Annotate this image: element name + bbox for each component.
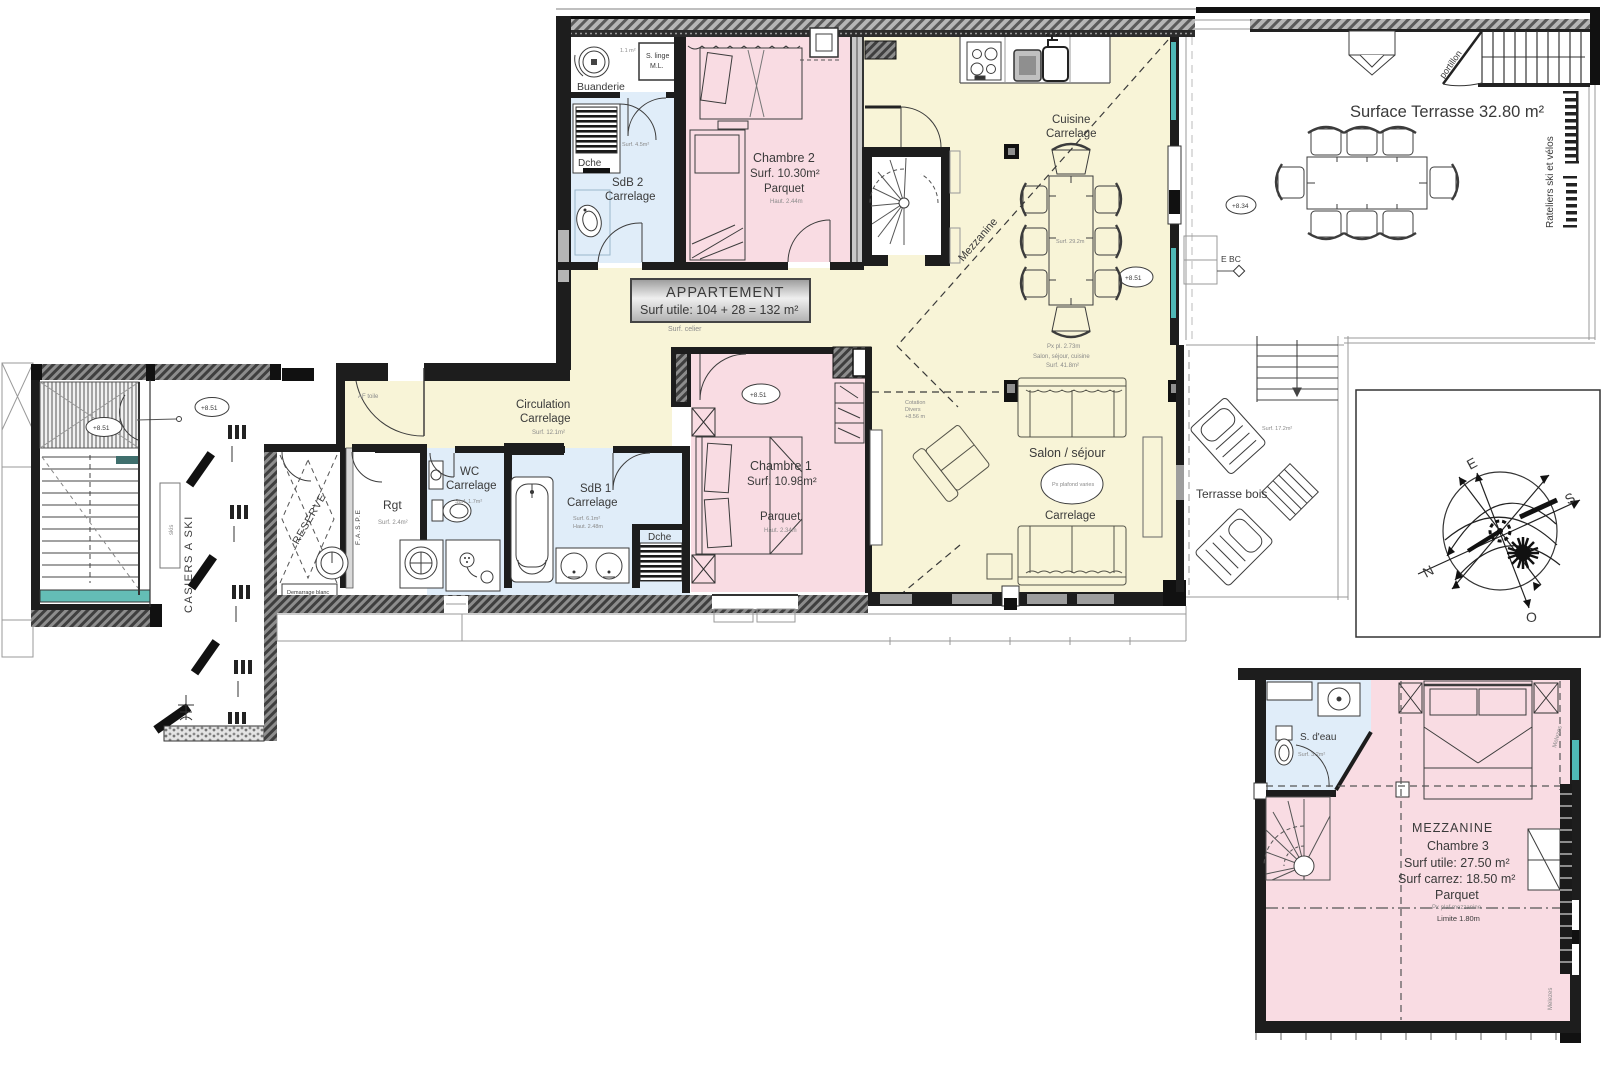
svg-text:Melezes: Melezes: [1548, 988, 1554, 1010]
svg-text:Chambre 2: Chambre 2: [753, 151, 815, 165]
svg-text:+8.34: +8.34: [1232, 203, 1249, 210]
svg-text:F.A.S.P.E: F.A.S.P.E: [355, 509, 362, 545]
svg-text:Carrelage: Carrelage: [446, 480, 497, 492]
svg-text:Haut. 2.44m: Haut. 2.44m: [770, 199, 803, 205]
svg-text:Chambre 3: Chambre 3: [1427, 839, 1489, 853]
svg-text:Surface Terrasse 32.80 m²: Surface Terrasse 32.80 m²: [1350, 103, 1545, 121]
svg-text:SdB 1: SdB 1: [580, 483, 611, 495]
svg-text:Surf. 10.30m²: Surf. 10.30m²: [750, 168, 820, 180]
svg-text:Surf. 2.4m²: Surf. 2.4m²: [378, 520, 408, 526]
svg-text:+8.51: +8.51: [750, 392, 767, 399]
svg-text:Carrelage: Carrelage: [567, 497, 618, 509]
svg-text:Carrelage: Carrelage: [1045, 510, 1096, 522]
svg-text:Surf. 1.7m²: Surf. 1.7m²: [455, 499, 482, 505]
svg-text:+8.51: +8.51: [1125, 275, 1142, 282]
svg-text:MEZZANINE: MEZZANINE: [1412, 821, 1493, 835]
svg-text:Parquet: Parquet: [1435, 888, 1479, 902]
svg-text:SdB 2: SdB 2: [612, 177, 643, 189]
svg-text:Surf. 12.1m²: Surf. 12.1m²: [532, 430, 565, 436]
svg-text:Surf. celier: Surf. celier: [668, 326, 702, 333]
svg-text:S. d'eau: S. d'eau: [1300, 732, 1336, 743]
svg-text:AF toile: AF toile: [358, 394, 379, 400]
svg-text:Limite 1.80m: Limite 1.80m: [1437, 914, 1480, 923]
svg-text:Surf utile: 27.50 m²: Surf utile: 27.50 m²: [1404, 856, 1510, 870]
svg-text:skis: skis: [169, 525, 175, 535]
svg-text:Dche: Dche: [578, 158, 602, 169]
svg-text:Rgt: Rgt: [383, 498, 402, 512]
svg-text:Circulation: Circulation: [516, 399, 570, 411]
svg-text:Carrelage: Carrelage: [605, 191, 656, 203]
svg-text:1.1 m²: 1.1 m²: [620, 48, 636, 54]
svg-text:Surf. 17.2m²: Surf. 17.2m²: [1262, 426, 1292, 432]
svg-text:Carrelage: Carrelage: [520, 413, 571, 425]
svg-text:Px plafond varies: Px plafond varies: [1052, 482, 1094, 488]
svg-text:Surf. 29.2m: Surf. 29.2m: [1056, 239, 1085, 245]
svg-text:Rateliers ski et vélos: Rateliers ski et vélos: [1545, 136, 1556, 228]
svg-text:APPARTEMENT: APPARTEMENT: [666, 285, 784, 301]
svg-text:Px plaf mezzanine: Px plaf mezzanine: [1432, 905, 1482, 911]
svg-text:Parquet: Parquet: [764, 183, 805, 195]
svg-text:Surf. 10.98m²: Surf. 10.98m²: [747, 476, 817, 488]
svg-text:Surf. 4.5m²: Surf. 4.5m²: [622, 142, 649, 148]
svg-text:O: O: [1526, 609, 1537, 625]
svg-text:Terrasse bois: Terrasse bois: [1196, 487, 1267, 501]
svg-text:Surf. 41.8m²: Surf. 41.8m²: [1046, 363, 1079, 369]
svg-text:WC: WC: [460, 466, 479, 478]
svg-text:+8.56 m: +8.56 m: [905, 414, 925, 420]
svg-text:Buanderie: Buanderie: [577, 81, 625, 93]
svg-text:Surf. 3.2m²: Surf. 3.2m²: [1298, 752, 1325, 758]
svg-text:Surf carrez: 18.50 m²: Surf carrez: 18.50 m²: [1398, 872, 1515, 886]
svg-text:Haut. 2.48m: Haut. 2.48m: [573, 524, 603, 530]
svg-text:Px pl. 2.73m: Px pl. 2.73m: [1047, 344, 1080, 350]
svg-text:Carrelage: Carrelage: [1046, 128, 1097, 140]
svg-text:Dche: Dche: [648, 532, 672, 543]
svg-text:M.L.: M.L.: [650, 63, 664, 70]
svg-text:S. linge: S. linge: [646, 53, 669, 60]
svg-text:Surf. 6.1m²: Surf. 6.1m²: [573, 516, 600, 522]
svg-text:Haut. 2.34m: Haut. 2.34m: [764, 528, 797, 534]
svg-text:+8.51: +8.51: [201, 405, 218, 412]
svg-text:CASIERS A SKI: CASIERS A SKI: [183, 515, 195, 613]
svg-text:E BC: E BC: [1221, 254, 1241, 264]
svg-text:+8.51: +8.51: [93, 425, 110, 432]
svg-text:Cotation: Cotation: [905, 400, 926, 406]
svg-text:Surf utile: 104 + 28 = 132 m²: Surf utile: 104 + 28 = 132 m²: [640, 303, 798, 317]
svg-text:Chambre 1: Chambre 1: [750, 459, 812, 473]
svg-text:Divers: Divers: [905, 407, 921, 413]
svg-text:Salon / séjour: Salon / séjour: [1029, 446, 1105, 460]
svg-text:Cuisine: Cuisine: [1052, 114, 1090, 126]
svg-text:Parquet: Parquet: [760, 511, 801, 523]
svg-text:Salon, séjour, cuisine: Salon, séjour, cuisine: [1033, 354, 1090, 360]
